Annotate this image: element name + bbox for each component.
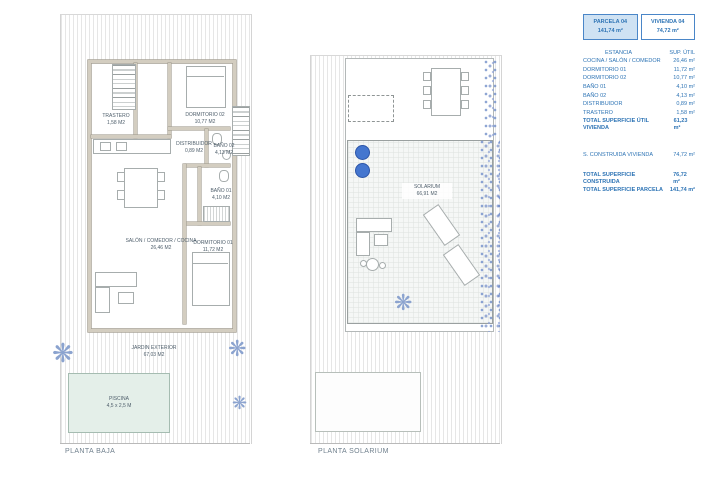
- floor-plan-sheet: TRASTERO 1,58 M2 DORMITORIO 02 10,77 M2 …: [0, 0, 705, 498]
- summary-row: BAÑO 01 4,10 m²: [583, 83, 695, 92]
- room-label-dormitorio-01: DORMITORIO 01 11,72 M2: [188, 240, 238, 254]
- summary-row: BAÑO 02 4,13 m²: [583, 92, 695, 101]
- sofa: [95, 272, 137, 287]
- skylight-dot: [355, 163, 370, 178]
- outdoor-coffee-table: [374, 234, 388, 246]
- shower-bano-01: [203, 206, 230, 222]
- room-label-dormitorio-02: DORMITORIO 02 10,77 M2: [180, 112, 230, 126]
- planta-solarium-title: PLANTA SOLARIUM: [318, 448, 389, 455]
- stool: [360, 260, 367, 267]
- planta-baja-baseline: [60, 443, 250, 444]
- planta-solarium-baseline: [310, 443, 500, 444]
- pool-label: PISCINA 4,5 x 2,5 M: [69, 396, 169, 410]
- dining-chair: [157, 172, 165, 182]
- rooftop-chair: [461, 100, 469, 109]
- vegetation-strip: [480, 140, 500, 332]
- bed-pillow-line: [186, 76, 224, 77]
- room-label-trastero: TRASTERO 1,58 M2: [92, 113, 140, 127]
- kitchen-sink: [100, 142, 111, 151]
- kitchen-hob: [116, 142, 127, 151]
- summary-total-construida: TOTAL SUPERFICIE CONSTRUIDA 76,72 m²: [583, 171, 695, 186]
- outdoor-sofa: [356, 218, 392, 232]
- summary-header: PARCELA 04 141,74 m² VIVIENDA 04 74,72 m…: [583, 14, 695, 40]
- summary-total-util: TOTAL SUPERFICIE ÚTIL VIVIENDA 61,23 m²: [583, 117, 695, 132]
- rooftop-table: [431, 68, 461, 116]
- toilet-bano-01: [219, 170, 229, 182]
- dining-table: [124, 168, 158, 208]
- skylight-dot: [355, 145, 370, 160]
- plant-icon: ❋: [394, 292, 412, 314]
- summary-table: PARCELA 04 141,74 m² VIVIENDA 04 74,72 m…: [583, 14, 695, 195]
- rooftop-chair: [423, 100, 431, 109]
- stool: [379, 262, 386, 269]
- plant-icon: ❋: [232, 394, 247, 412]
- rooftop-chair: [423, 72, 431, 81]
- room-label-jardin-exterior: JARDIN EXTERIOR 67,03 M2: [126, 345, 182, 359]
- rooftop-chair: [461, 86, 469, 95]
- summary-column-headers: ESTANCIA SUP. ÚTIL: [583, 49, 695, 58]
- pool-planta-solarium: [315, 372, 421, 432]
- rooftop-chair: [461, 72, 469, 81]
- outdoor-sofa: [356, 232, 370, 256]
- room-label-solarium: SOLARIUM 66,91 M2: [402, 183, 452, 199]
- summary-total-parcela: TOTAL SUPERFICIE PARCELA 141,74 m²: [583, 186, 695, 195]
- room-label-bano-01: BAÑO 01 4,10 M2: [203, 188, 239, 202]
- wall-partition: [185, 222, 230, 225]
- parcela-header-cell: PARCELA 04 141,74 m²: [583, 14, 638, 40]
- rooftop-chair: [423, 86, 431, 95]
- stair-opening-dashed: [348, 95, 394, 122]
- room-label-bano-02: BAÑO 02 4,13 M2: [206, 143, 242, 157]
- summary-row: TRASTERO 1,58 m²: [583, 109, 695, 118]
- summary-row: DISTRIBUIDOR 0,89 m²: [583, 100, 695, 109]
- sofa-chaise: [95, 287, 110, 313]
- summary-row: DORMITORIO 02 10,77 m²: [583, 74, 695, 83]
- wall-partition: [168, 127, 230, 130]
- pool-planta-baja: PISCINA 4,5 x 2,5 M: [68, 373, 170, 433]
- vivienda-header-cell: VIVIENDA 04 74,72 m²: [641, 14, 696, 40]
- planta-baja-title: PLANTA BAJA: [65, 448, 115, 455]
- dining-chair: [157, 190, 165, 200]
- bed-dormitorio-02: [186, 66, 226, 108]
- wall-partition: [91, 135, 171, 138]
- round-table: [366, 258, 379, 271]
- vegetation-strip: [484, 60, 500, 140]
- plant-icon: ❋: [228, 338, 246, 360]
- summary-construida: S. CONSTRUIDA VIVIENDA 74,72 m²: [583, 151, 695, 160]
- stairs: [112, 64, 136, 110]
- wall-partition: [198, 167, 201, 225]
- plant-icon: ❋: [52, 340, 74, 366]
- bed-pillow-line: [192, 263, 228, 264]
- coffee-table: [118, 292, 134, 304]
- summary-row: COCINA / SALÓN / COMEDOR 26,46 m²: [583, 57, 695, 66]
- summary-row: DORMITORIO 01 11,72 m²: [583, 66, 695, 75]
- dining-chair: [117, 172, 125, 182]
- dining-chair: [117, 190, 125, 200]
- wall-partition: [185, 164, 230, 167]
- bed-dormitorio-01: [192, 252, 230, 306]
